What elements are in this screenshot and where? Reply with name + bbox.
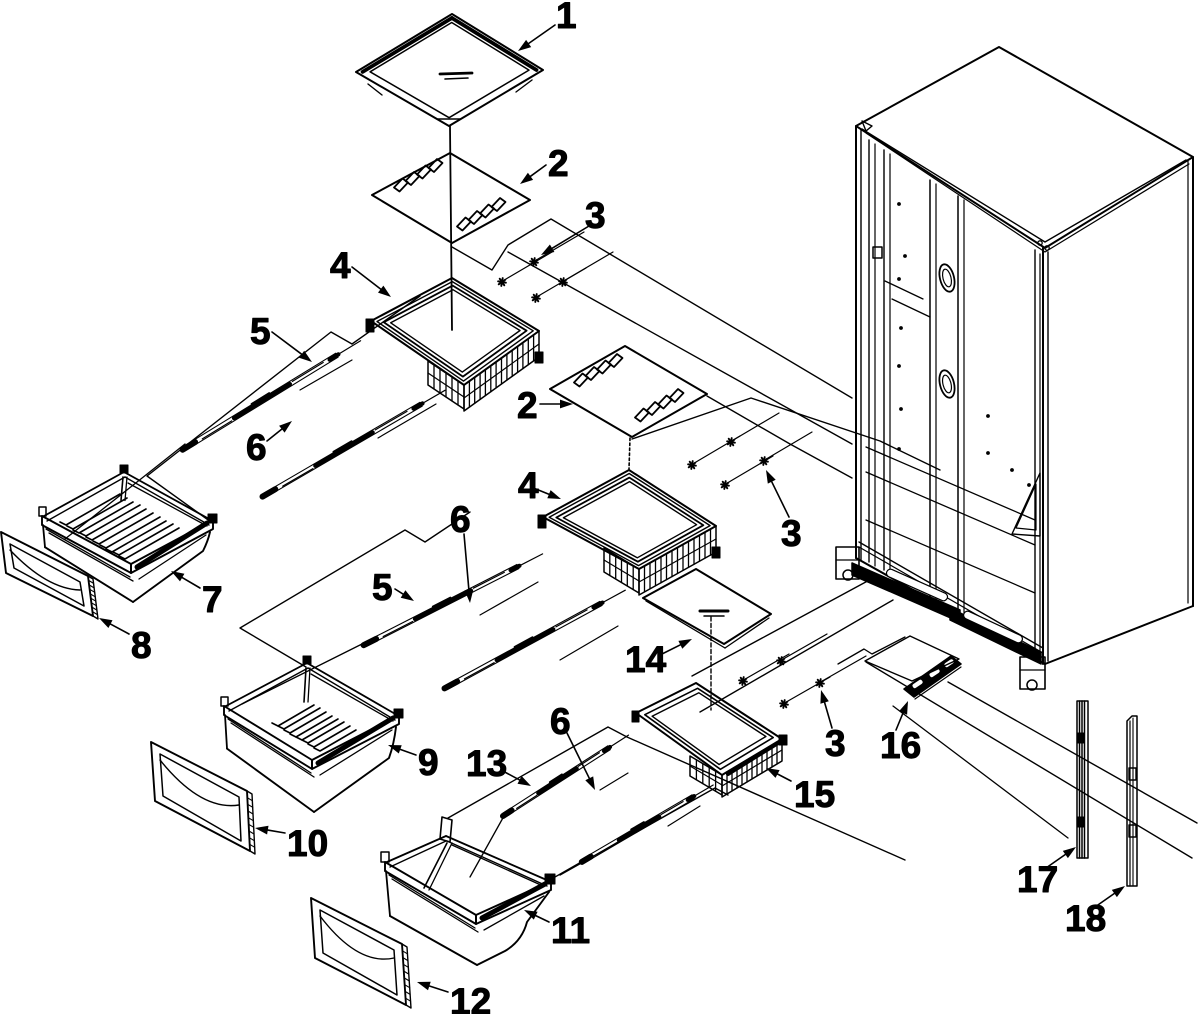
svg-text:3: 3 bbox=[781, 513, 802, 554]
svg-text:9: 9 bbox=[418, 742, 439, 783]
svg-text:10: 10 bbox=[287, 823, 328, 864]
svg-text:7: 7 bbox=[202, 579, 223, 620]
svg-text:12: 12 bbox=[450, 981, 491, 1014]
svg-text:13: 13 bbox=[466, 743, 507, 784]
svg-text:1: 1 bbox=[556, 0, 577, 36]
svg-text:6: 6 bbox=[550, 701, 571, 742]
svg-text:11: 11 bbox=[551, 910, 590, 951]
svg-text:2: 2 bbox=[517, 385, 538, 426]
svg-text:16: 16 bbox=[880, 725, 921, 766]
svg-text:14: 14 bbox=[625, 639, 667, 680]
svg-text:6: 6 bbox=[246, 427, 267, 468]
svg-text:3: 3 bbox=[825, 723, 846, 764]
svg-text:4: 4 bbox=[518, 465, 539, 506]
svg-text:17: 17 bbox=[1017, 859, 1058, 900]
svg-text:5: 5 bbox=[250, 311, 271, 352]
svg-text:2: 2 bbox=[548, 143, 569, 184]
svg-text:6: 6 bbox=[450, 499, 471, 540]
svg-text:8: 8 bbox=[131, 625, 152, 666]
svg-text:5: 5 bbox=[372, 567, 393, 608]
svg-text:15: 15 bbox=[794, 774, 835, 815]
svg-text:3: 3 bbox=[585, 195, 606, 236]
svg-text:4: 4 bbox=[330, 245, 351, 286]
